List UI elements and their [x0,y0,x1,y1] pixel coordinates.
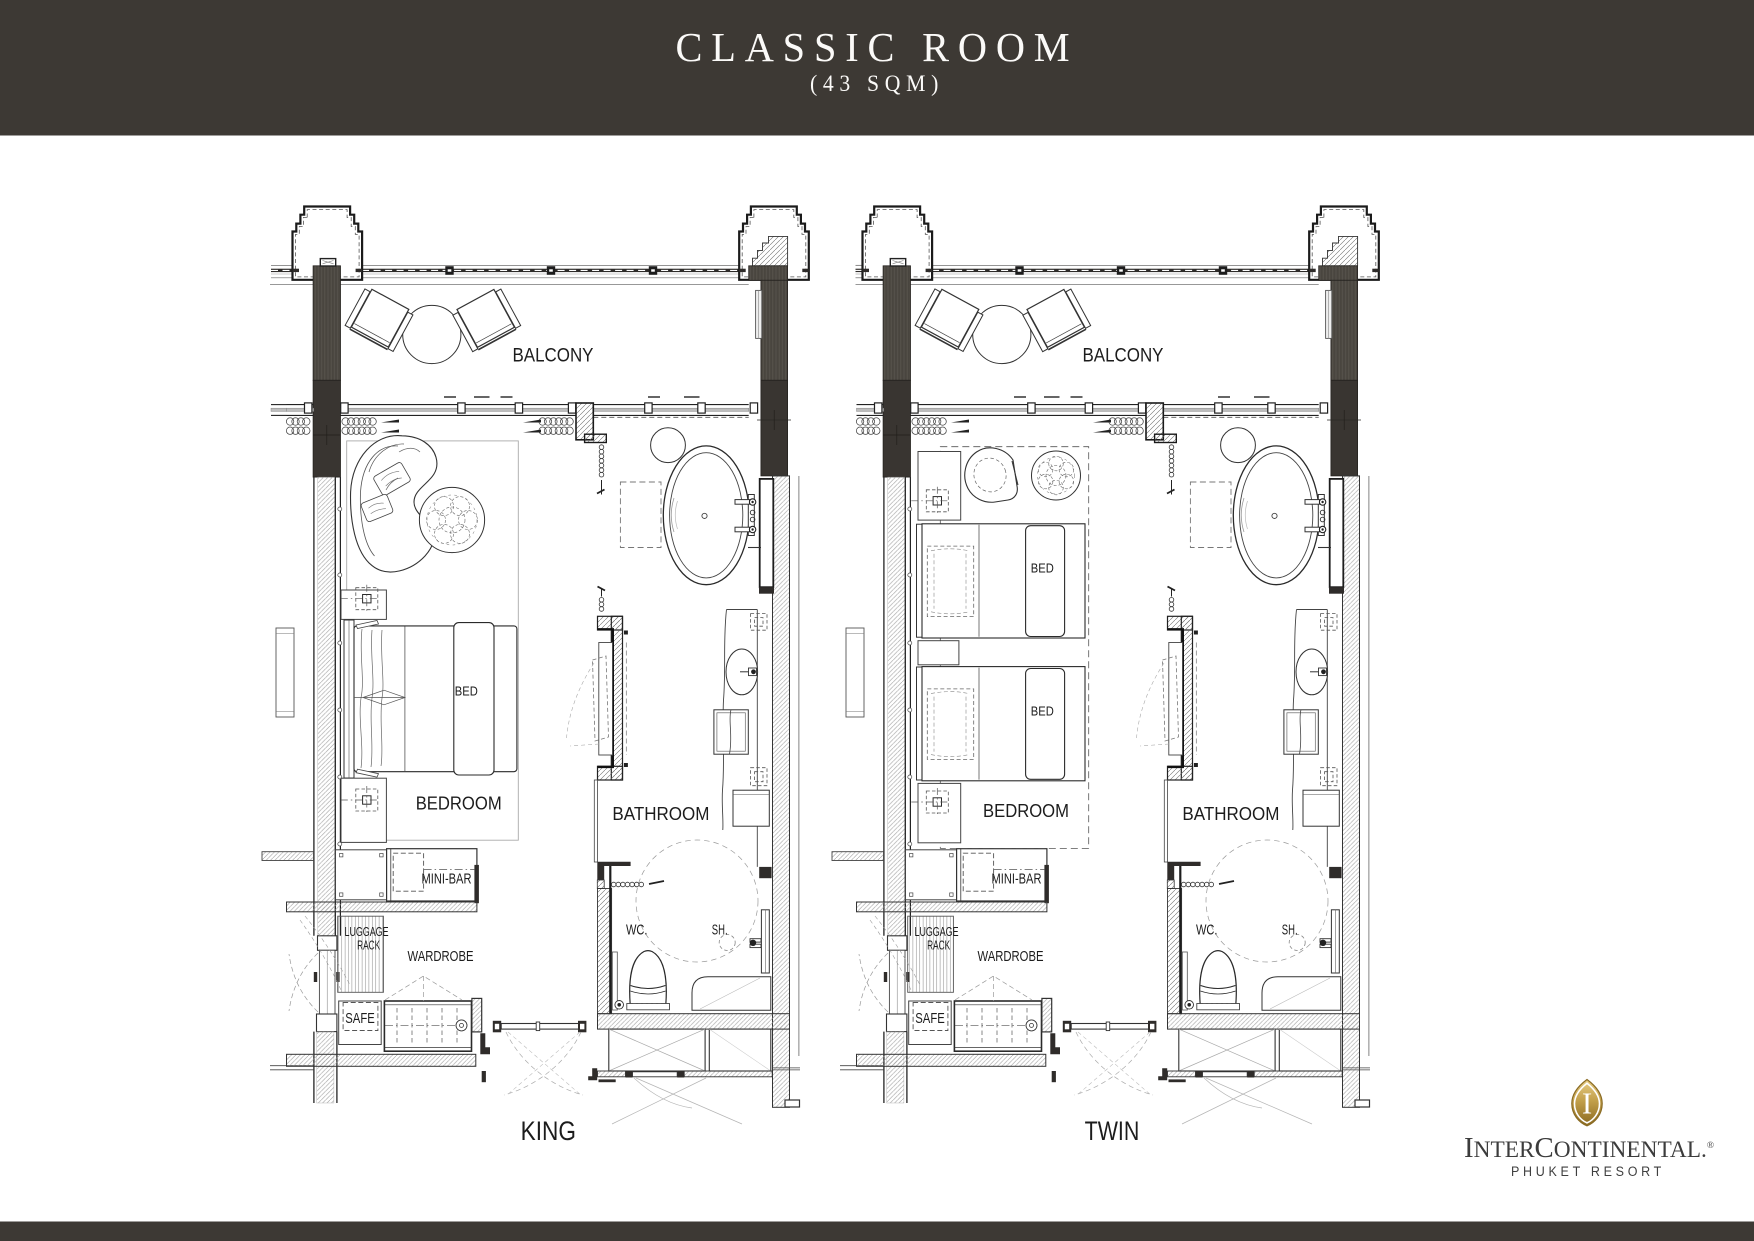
svg-text:SH.: SH. [712,923,728,939]
svg-text:CLASSIC ROOM: CLASSIC ROOM [676,24,1079,70]
svg-text:WARDROBE: WARDROBE [408,949,474,965]
svg-text:BEDROOM: BEDROOM [416,793,502,814]
svg-text:RACK: RACK [357,938,380,953]
svg-text:BATHROOM: BATHROOM [1182,803,1279,824]
svg-text:WC.: WC. [626,923,648,939]
svg-text:KING: KING [521,1116,576,1146]
svg-text:TWIN: TWIN [1085,1116,1140,1146]
svg-text:SAFE: SAFE [915,1011,945,1027]
svg-text:WARDROBE: WARDROBE [978,949,1044,965]
svg-text:BEDROOM: BEDROOM [983,800,1069,821]
svg-text:WC.: WC. [1196,923,1218,939]
svg-text:BED: BED [1031,562,1054,576]
svg-text:BALCONY: BALCONY [513,345,594,367]
svg-text:I: I [1582,1086,1592,1121]
svg-text:INTERCONTINENTAL.®: INTERCONTINENTAL.® [1464,1132,1714,1164]
svg-text:SH.: SH. [1282,923,1298,939]
svg-text:(43 SQM): (43 SQM) [810,71,944,96]
svg-text:SAFE: SAFE [345,1011,375,1027]
svg-text:RACK: RACK [927,938,950,953]
svg-text:BED: BED [455,684,478,698]
svg-text:BATHROOM: BATHROOM [612,803,709,824]
svg-text:PHUKET RESORT: PHUKET RESORT [1511,1164,1665,1179]
svg-text:BED: BED [1031,704,1054,718]
svg-text:MINI-BAR: MINI-BAR [992,872,1042,888]
svg-text:BALCONY: BALCONY [1083,345,1164,367]
svg-text:MINI-BAR: MINI-BAR [422,872,472,888]
